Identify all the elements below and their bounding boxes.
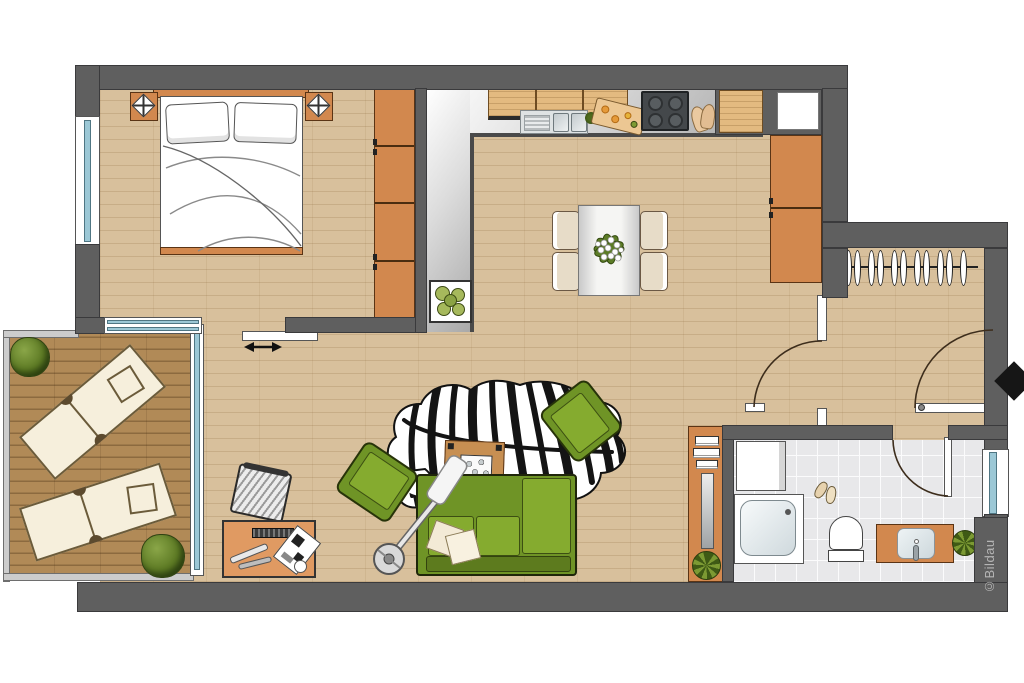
coat-hook (923, 250, 930, 286)
seat-cushion (476, 516, 520, 556)
table-corner (448, 443, 454, 449)
wall-balcony-stub (75, 317, 107, 334)
vanity (876, 524, 954, 563)
wall-top (75, 65, 848, 90)
table-corner (496, 445, 502, 451)
office-chair (229, 463, 292, 523)
towel-stack (695, 436, 719, 446)
coat-hook (877, 250, 884, 286)
wall-bedroom-kitchen (415, 88, 427, 333)
towel-stack (693, 448, 720, 458)
wall-bedroom-south (285, 317, 417, 333)
lounger-headrest (126, 483, 158, 515)
toilet-seat (828, 550, 864, 562)
wardrobe-shelf-line (375, 202, 414, 204)
desk (222, 520, 316, 578)
wall-bathroom-west (722, 425, 734, 582)
interior-door-leaf (817, 295, 827, 341)
cabinet-handle (769, 198, 773, 204)
shower-drain (785, 509, 791, 515)
coat-hook (914, 250, 921, 286)
mouse (294, 560, 307, 573)
wall-right-upper (984, 248, 1008, 453)
dining-chair (640, 252, 668, 291)
wall-bathroom-top-right (948, 425, 1008, 440)
shelf-plant (692, 551, 721, 580)
towel-shelf (688, 426, 724, 582)
faucet-dot (914, 539, 919, 544)
dining-chair (640, 211, 668, 250)
sink-basin-left (553, 113, 569, 132)
shower (734, 494, 804, 564)
door-jamb (817, 408, 827, 426)
dining-chair (552, 252, 580, 291)
balcony-rail-top (3, 330, 79, 338)
bed-footboard (160, 247, 303, 255)
leaf (444, 294, 457, 307)
burner (668, 113, 683, 128)
wall-bathroom-top-left (722, 425, 893, 440)
lounger-headrest (107, 365, 146, 404)
wall-bottom (77, 582, 1008, 612)
bush-plant-bottom (141, 534, 185, 578)
toilet-bowl (829, 516, 863, 550)
cooktop (641, 91, 689, 131)
wardrobe-handle (373, 254, 377, 260)
lounger-fold (79, 490, 97, 540)
bush-plant-top (10, 337, 50, 377)
wardrobe-handle (373, 264, 377, 270)
burner (648, 96, 663, 111)
window-left-glass (84, 120, 91, 242)
door-knob (918, 404, 925, 411)
tall-cabinet (770, 135, 822, 283)
burner (668, 96, 683, 111)
greens (630, 120, 638, 128)
wall-kitchen-right (822, 88, 848, 222)
cabinet-divider (771, 207, 821, 209)
faucet (913, 545, 919, 561)
burner (648, 113, 663, 128)
wall-mirror (701, 473, 714, 549)
bed-pillow-right (233, 102, 297, 144)
wall-dining-hallway-stub (822, 248, 848, 298)
wall-hallway-top (822, 222, 1008, 248)
orange-slice (610, 114, 620, 124)
balcony-rail-left (3, 330, 10, 582)
wardrobe-shelf-line (375, 260, 414, 262)
dining-chair (552, 211, 580, 250)
bed-pillow-left (165, 101, 230, 144)
bathroom-window-glass (989, 452, 997, 514)
fruit (624, 111, 632, 119)
watermark: ©Bildau (982, 524, 997, 594)
coat-hook (937, 250, 944, 286)
coat-hook (891, 250, 898, 286)
coat-hook (854, 250, 861, 286)
kitchen-corner-cabinet (719, 90, 763, 133)
outside-area (848, 60, 986, 222)
drainboard (524, 115, 550, 131)
entrance-door-leaf (915, 403, 994, 413)
kitchen-sink-unit (520, 110, 588, 134)
coat-hook (960, 250, 967, 286)
fridge-niche (777, 92, 819, 130)
wardrobe-handle (373, 149, 377, 155)
balcony-glass (194, 330, 200, 570)
coat-hook (946, 250, 953, 286)
bedroom-balcony-glass (107, 320, 199, 324)
washing-machine (736, 441, 786, 491)
orange-slice (600, 105, 610, 115)
corner-sofa (416, 474, 577, 576)
towel-stack (696, 460, 718, 469)
wardrobe-handle (373, 139, 377, 145)
toilet (829, 516, 863, 564)
cabinet-handle (769, 212, 773, 218)
sofa-backrest (426, 556, 571, 572)
coat-hook (900, 250, 907, 286)
coat-hook (868, 250, 875, 286)
kitchen-plant-box (429, 280, 472, 323)
lounger-fold (66, 399, 101, 440)
door-jamb (745, 403, 765, 412)
wardrobe-shelf-line (375, 145, 414, 147)
dining-table (578, 205, 640, 296)
bedroom-balcony-glass (107, 327, 199, 331)
floor-plan: ©Bildau (0, 0, 1024, 683)
chaise-cushion (522, 478, 571, 554)
bathroom-door-leaf (944, 437, 952, 497)
wardrobe (374, 88, 415, 318)
